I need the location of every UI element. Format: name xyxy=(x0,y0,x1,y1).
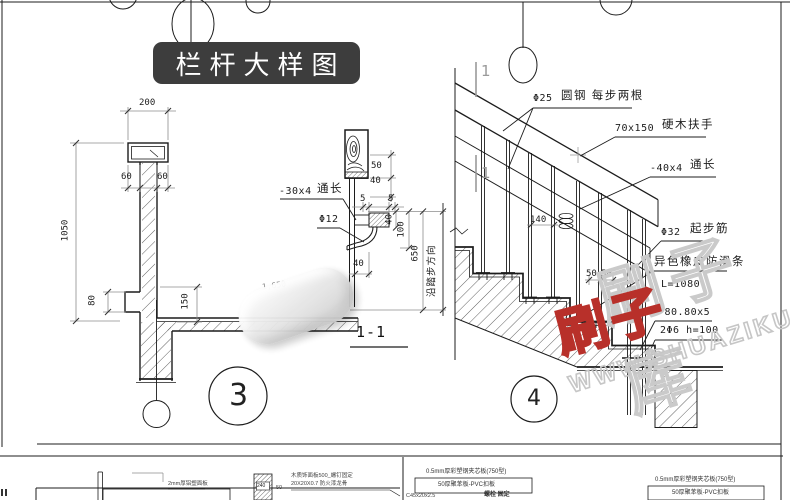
bottom-right-note-3a: C45x20x2.5 xyxy=(406,494,435,500)
bottom-right-note-5: 50厚聚苯板-PVC扣板 xyxy=(672,490,729,496)
section-label-1-1: 1-1 xyxy=(356,325,386,340)
dim-40-top: 40 xyxy=(370,177,381,186)
ann-rod-size: Φ25 xyxy=(533,94,553,104)
detail-bubble-3: 3 xyxy=(229,381,248,411)
dim-5-right: 5 xyxy=(388,195,393,204)
dim-140: 140 xyxy=(530,216,546,225)
bottom-left-dim: 50 xyxy=(276,486,282,492)
drawing-title: 栏杆大样图 xyxy=(153,42,360,84)
flat-bar-size: -30x4 xyxy=(279,187,312,197)
dim-40-bottom: 40 xyxy=(353,260,364,269)
detail-bubble-4: 4 xyxy=(527,388,541,410)
rebar-size: Φ12 xyxy=(319,215,339,225)
bottom-left-note-1: 2mm厚铝塑面板 xyxy=(168,482,208,488)
cad-sheet: 栏杆大样图 200 60 60 1050 80 150 1,650 3 -30x… xyxy=(0,0,790,500)
dim-100: 100 xyxy=(398,220,407,240)
bottom-right-note-3b: 螺栓 固定 xyxy=(484,492,510,498)
direction-note: 沿踏步方向 xyxy=(427,244,437,298)
bottom-left-note-3: 20X20X0.7 防火漆龙骨 xyxy=(291,482,347,488)
dim-5-left: 5 xyxy=(360,195,365,204)
bottom-col-label: 240 xyxy=(257,484,265,489)
dim-50-rail: 50 xyxy=(371,162,382,171)
cut-mark-1-top: 1 xyxy=(481,64,491,79)
ann-rod-text: 圆钢 每步两根 xyxy=(561,91,644,103)
dim-200: 200 xyxy=(139,99,155,108)
ann-rail-text: 硬木扶手 xyxy=(662,120,714,132)
dim-40-mid: 40 xyxy=(386,213,395,227)
ann-bar-text: 通长 xyxy=(690,160,716,172)
dim-60-left: 60 xyxy=(121,173,132,182)
dim-80: 80 xyxy=(89,294,98,308)
dim-150: 150 xyxy=(182,292,191,312)
bottom-right-note-2: 50厚聚苯板-PVC扣板 xyxy=(438,482,495,488)
bottom-left-note-2: 木质饰面板500_螺钉固定 xyxy=(291,474,353,480)
bottom-right-note-4: 0.5mm厚彩塑钢夹芯板(750型) xyxy=(655,477,735,483)
ann-bar-size: -40x4 xyxy=(650,164,683,174)
bottom-right-note-1: 0.5mm厚彩塑钢夹芯板(750型) xyxy=(426,469,506,475)
detail3-linework xyxy=(70,107,358,428)
dim-650: 650 xyxy=(412,244,421,264)
flat-bar-note: 通长 xyxy=(317,184,343,196)
cut-mark-1-bottom: 1 xyxy=(481,166,491,181)
dim-60-right: 60 xyxy=(157,173,168,182)
bottom-strip-linework xyxy=(1,472,764,500)
dim-1050: 1050 xyxy=(62,218,71,244)
ann-rail-size: 70x150 xyxy=(615,124,654,134)
